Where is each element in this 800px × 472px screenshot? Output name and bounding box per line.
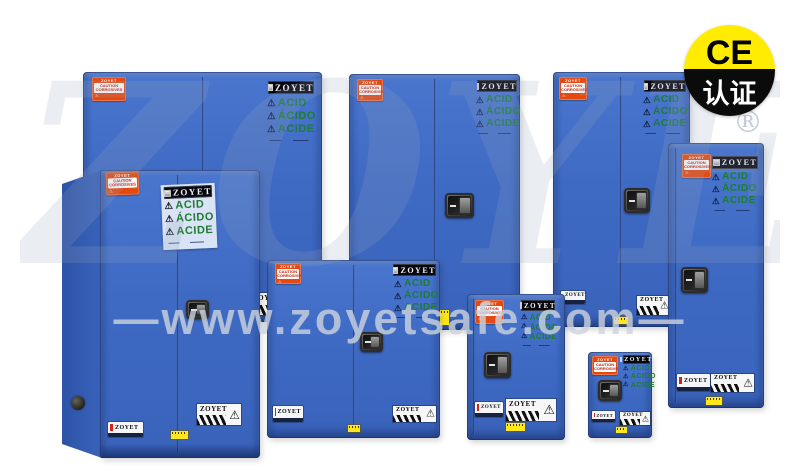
acid-label: ⚠ACID ⚠ÁCIDO ⚠ACIDE [643, 94, 689, 134]
acid-label: ⚠ACID ⚠ÁCIDO ⚠ACIDE [394, 278, 438, 318]
acid-label: ⚠ACID ⚠ÁCIDO ⚠ACIDE [267, 97, 319, 141]
hazard-triangle-icon: ⚠ [642, 414, 649, 423]
safety-cabinet-front-middle: ZOYET CAUTION CORROSIVES ⚠ ZOYET ⚠ACID ⚠… [267, 260, 440, 438]
acid-label: ⚠ACID ⚠ÁCIDO ⚠ACIDE [164, 198, 214, 244]
acid-label: ⚠ACID ⚠ÁCIDO ⚠ACIDE [476, 94, 520, 134]
triangle-icon: ⚠ [476, 107, 484, 117]
hazard-triangle-icon: ⚠ [229, 408, 240, 422]
corrosive-warning-label: ZOYET CAUTION CORROSIVES [592, 356, 618, 375]
hazard-stripe-label: ZOYET ⚠ [506, 399, 556, 421]
certification-label: ZOYET [677, 374, 710, 391]
vent-hole [71, 396, 85, 410]
spec-label-yellow [614, 317, 628, 324]
hazard-triangle-icon: ⚠ [543, 402, 555, 418]
triangle-icon: ⚠ [164, 201, 173, 213]
ce-badge-text: CE [684, 25, 775, 69]
brand-logo-icon [477, 83, 479, 90]
brand-label: ZOYET [268, 81, 314, 94]
triangle-icon: ⚠ [267, 111, 276, 122]
triangle-icon: ⚠ [712, 184, 720, 194]
acid-label: ⚠ACID ⚠ÁCIDO ⚠ACIDE [521, 313, 557, 346]
brand-logo-icon [268, 84, 273, 91]
triangle-icon: ⚠ [623, 366, 629, 373]
brand-label: ZOYET [477, 80, 517, 92]
triangle-icon: ⚠ [521, 323, 528, 331]
corrosive-warning-label: ZOYET CAUTION CORROSIVES ⚠ [275, 263, 301, 284]
safety-cabinet-tall-right: ZOYET CAUTION CORROSIVES ⚠ ZOYET ⚠ACID ⚠… [668, 143, 764, 408]
triangle-icon: ⚠ [476, 119, 484, 129]
cabinet-side-panel [62, 168, 102, 460]
safety-cabinet-front-left: ZOYET CAUTION CORROSIVES ⚠ ZOYET ⚠ACID ⚠… [62, 168, 260, 460]
spec-label-yellow [171, 431, 188, 439]
ce-badge-cert-text: 认证 [684, 69, 775, 116]
triangle-icon: ⚠ [278, 279, 282, 284]
brand-label: ZOYET [393, 264, 436, 276]
corrosive-warning-label: ZOYET CAUTION CORROSIVES ⚠ [106, 171, 140, 195]
hazard-stripe-label: ZOYET ⚠ [711, 374, 754, 392]
brand-label: ZOYET [712, 156, 758, 169]
brand-logo-icon [520, 302, 522, 309]
spec-label-yellow [616, 427, 627, 433]
hazard-triangle-icon: ⚠ [426, 409, 435, 420]
door-seam [353, 265, 355, 432]
acid-label: ⚠ACID ⚠ÁCIDO ⚠ACIDE [623, 365, 651, 390]
triangle-icon: ⚠ [394, 279, 402, 289]
triangle-icon: ⚠ [712, 196, 720, 206]
brand-logo-icon [164, 189, 171, 196]
corrosive-warning-label: ZOYET CAUTION CORROSIVES ⚠ [357, 79, 383, 101]
ce-certification-badge: CE 认证 [684, 25, 775, 116]
door-handle [624, 188, 650, 213]
brand-label: ZOYET [164, 185, 212, 199]
brand-label: ZOYET [644, 80, 686, 92]
triangle-icon: ⚠ [562, 93, 566, 98]
acid-sticker-label: ZOYET ⚠ACID ⚠ÁCIDO ⚠ACIDE [161, 183, 218, 250]
certification-label: ZOYET [475, 402, 503, 417]
spec-label-yellow [348, 425, 360, 432]
cabinet-base [100, 445, 260, 458]
triangle-icon: ⚠ [521, 314, 528, 322]
hazard-stripe-label: ZOYET ⚠ [393, 406, 436, 422]
hazard-stripe-label: ZOYET ⚠ [197, 404, 241, 425]
corrosive-warning-label: ZOYET CAUTION CORROSIVES ⚠ [682, 154, 711, 178]
hazard-stripe-label: ZOYET ⚠ [620, 412, 650, 425]
triangle-icon: ⚠ [643, 107, 651, 117]
certification-label: ZOYET [108, 422, 143, 437]
spec-label-yellow [440, 310, 449, 325]
door-seam [620, 77, 622, 321]
triangle-icon: ⚠ [360, 95, 364, 100]
triangle-icon: ⚠ [623, 382, 629, 389]
corrosive-warning-label: ZOYET CAUTION CORROSIVES ⚠ [475, 300, 504, 324]
triangle-icon: ⚠ [521, 333, 528, 341]
hazard-stripe-label: ZOYET ⚠ [637, 296, 670, 315]
acid-label: ⚠ACID ⚠ÁCIDO ⚠ACIDE [712, 171, 760, 211]
brand-logo-icon [620, 357, 622, 362]
hazard-triangle-icon: ⚠ [743, 377, 753, 390]
triangle-icon: ⚠ [165, 227, 174, 239]
triangle-icon: ⚠ [685, 170, 689, 175]
door-seam [675, 148, 677, 402]
triangle-icon: ⚠ [165, 214, 174, 226]
triangle-icon: ⚠ [643, 95, 651, 105]
brand-logo-icon [713, 159, 720, 166]
brand-logo-icon [393, 267, 398, 274]
corrosive-warning-label: ZOYET CAUTION CORROSIVES ⚠ [559, 77, 587, 100]
triangle-icon: ⚠ [476, 95, 484, 105]
safety-cabinet-small-right: ZOYET CAUTION CORROSIVES ZOYET ⚠ACID ⚠ÁC… [588, 352, 652, 438]
triangle-icon: ⚠ [623, 374, 629, 381]
corrosive-warning-label: ZOYET CAUTION CORROSIVES ⚠ [92, 77, 126, 101]
door-handle [681, 267, 708, 293]
triangle-icon: ⚠ [643, 119, 651, 129]
door-handle [598, 380, 622, 401]
door-handle [360, 332, 383, 352]
triangle-icon: ⚠ [109, 188, 113, 193]
triangle-icon: ⚠ [267, 98, 276, 109]
door-handle [484, 352, 511, 378]
triangle-icon: ⚠ [394, 291, 402, 301]
product-photo-acid-cabinets: ZOYET CAUTION CORROSIVES ⚠ ZOYET ⚠ACID ⚠… [0, 0, 800, 472]
spec-label-yellow [706, 397, 722, 405]
brand-logo-icon [644, 83, 648, 90]
brand-label: ZOYET [521, 300, 555, 311]
door-handle [445, 193, 474, 218]
triangle-icon: ⚠ [267, 124, 276, 135]
spec-label-yellow [506, 423, 525, 431]
door-handle [186, 300, 209, 319]
brand-label: ZOYET [623, 355, 650, 364]
triangle-icon: ⚠ [95, 93, 99, 98]
certification-label: ZOYET [592, 411, 615, 422]
safety-cabinet-small-center: ZOYET CAUTION CORROSIVES ⚠ ZOYET ⚠ACID ⚠… [467, 294, 565, 440]
triangle-icon: ⚠ [712, 172, 720, 182]
cabinet-front-face: ZOYET CAUTION CORROSIVES ⚠ ZOYET ⚠ACID ⚠… [100, 170, 260, 458]
triangle-icon: ⚠ [478, 316, 482, 321]
triangle-icon: ⚠ [394, 303, 402, 313]
certification-label: ZOYET [273, 406, 303, 422]
